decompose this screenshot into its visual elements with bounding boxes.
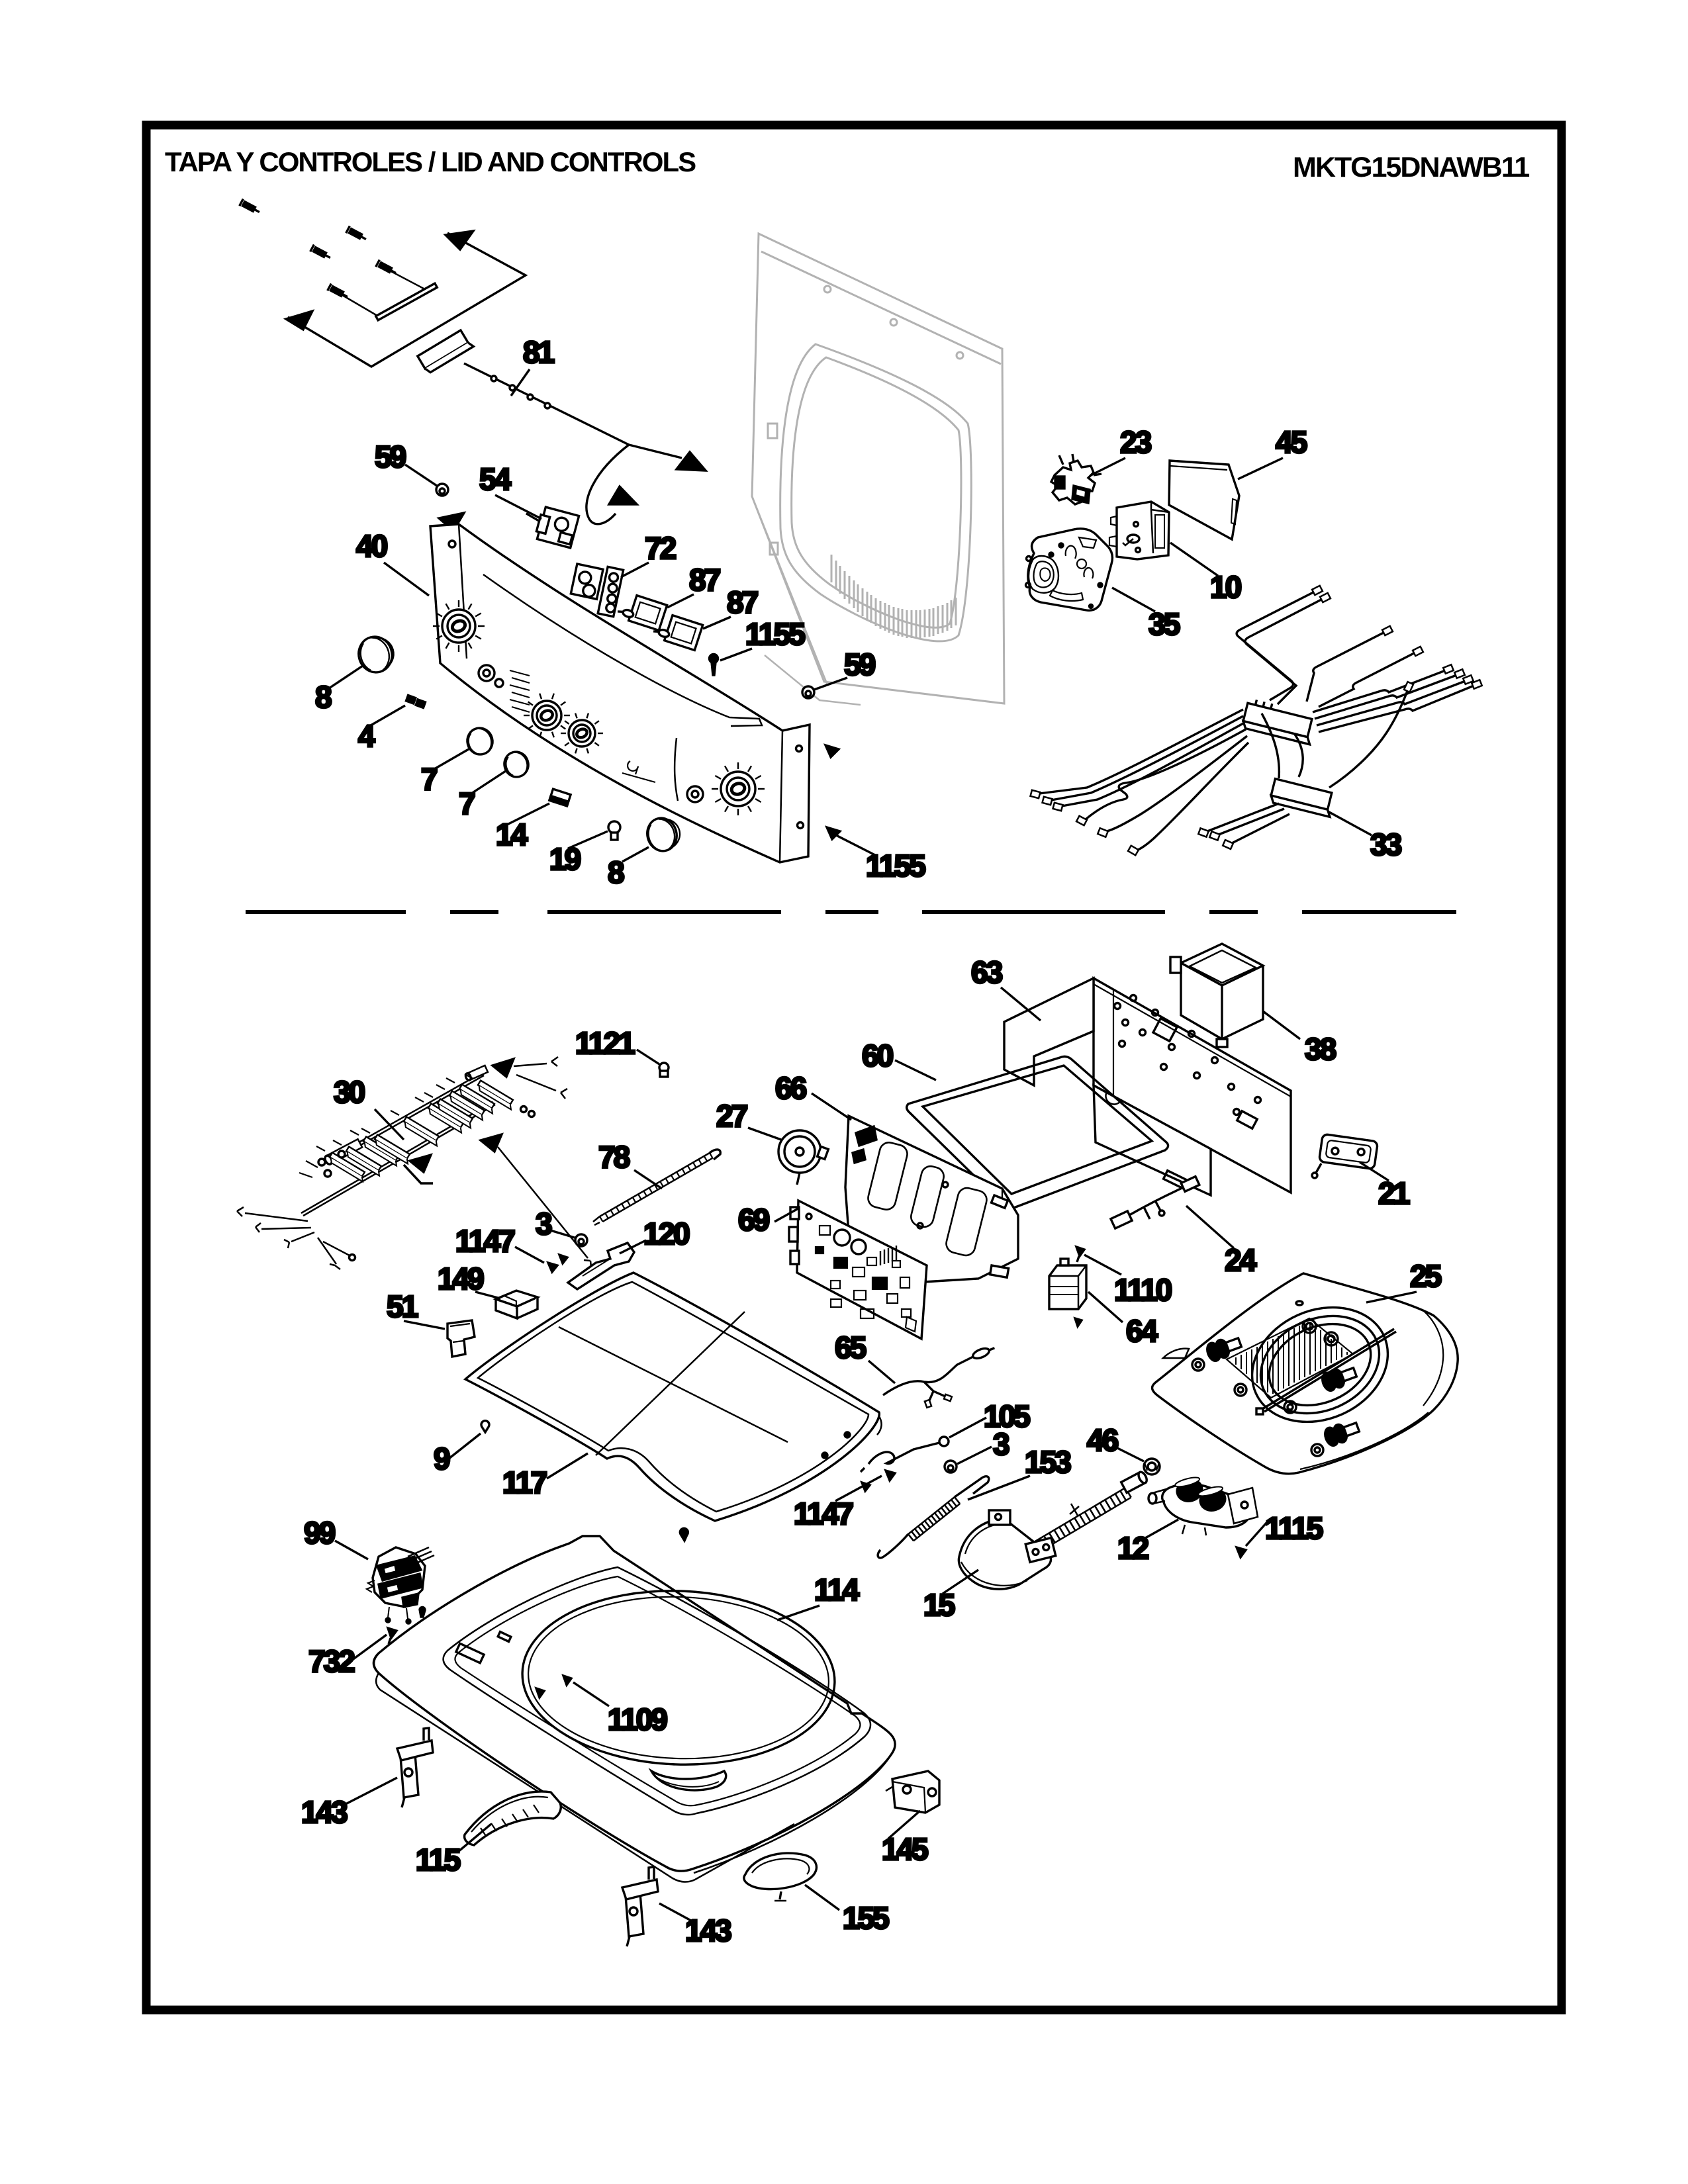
svg-text:1147: 1147 (794, 1496, 853, 1531)
svg-text:15: 15 (923, 1588, 955, 1622)
svg-text:12: 12 (1117, 1531, 1149, 1565)
svg-text:8: 8 (608, 855, 624, 889)
svg-text:33: 33 (1370, 827, 1401, 862)
svg-text:3: 3 (536, 1206, 551, 1241)
svg-text:78: 78 (598, 1140, 630, 1174)
svg-text:40: 40 (356, 529, 387, 563)
svg-text:114: 114 (814, 1572, 860, 1607)
svg-text:35: 35 (1149, 607, 1180, 641)
svg-text:10: 10 (1210, 570, 1241, 604)
svg-text:19: 19 (549, 842, 581, 876)
svg-text:732: 732 (308, 1644, 354, 1678)
svg-text:45: 45 (1276, 425, 1307, 459)
svg-text:155: 155 (843, 1901, 889, 1935)
svg-text:66: 66 (775, 1071, 806, 1105)
svg-text:TAPA Y CONTROLES / LID AND CO: TAPA Y CONTROLES / LID AND CONTROLS (165, 146, 696, 177)
svg-text:1155: 1155 (745, 617, 805, 651)
svg-text:143: 143 (685, 1913, 731, 1948)
svg-text:51: 51 (387, 1289, 418, 1324)
svg-text:1109: 1109 (608, 1702, 667, 1737)
svg-text:8: 8 (315, 680, 332, 714)
svg-text:1121: 1121 (575, 1026, 635, 1060)
svg-text:25: 25 (1410, 1259, 1442, 1293)
svg-text:120: 120 (643, 1216, 689, 1251)
svg-text:99: 99 (304, 1516, 335, 1550)
svg-text:64: 64 (1126, 1314, 1158, 1348)
svg-text:24: 24 (1225, 1243, 1257, 1277)
svg-text:153: 153 (1025, 1445, 1070, 1479)
svg-text:72: 72 (645, 531, 676, 565)
svg-text:59: 59 (375, 439, 406, 474)
svg-text:1147: 1147 (455, 1224, 514, 1258)
svg-text:65: 65 (835, 1330, 867, 1365)
svg-text:143: 143 (301, 1795, 347, 1829)
svg-text:1110: 1110 (1114, 1273, 1172, 1307)
svg-text:149: 149 (438, 1261, 483, 1296)
svg-text:69: 69 (738, 1203, 769, 1237)
svg-text:21: 21 (1378, 1176, 1410, 1210)
svg-text:23: 23 (1120, 425, 1151, 459)
svg-text:54: 54 (479, 462, 512, 496)
svg-text:115: 115 (416, 1843, 461, 1877)
svg-text:87: 87 (727, 585, 758, 619)
svg-text:60: 60 (862, 1038, 893, 1073)
svg-text:9: 9 (434, 1441, 449, 1476)
svg-text:63: 63 (971, 955, 1002, 989)
svg-text:87: 87 (689, 563, 720, 597)
svg-text:117: 117 (502, 1465, 547, 1500)
svg-text:MKTG15DNAWB11: MKTG15DNAWB11 (1293, 152, 1529, 183)
svg-text:3: 3 (993, 1427, 1009, 1461)
svg-text:59: 59 (844, 647, 875, 682)
svg-text:46: 46 (1087, 1423, 1118, 1457)
svg-text:38: 38 (1305, 1032, 1336, 1066)
svg-text:1155: 1155 (866, 848, 925, 883)
svg-text:1115: 1115 (1265, 1511, 1323, 1545)
svg-text:30: 30 (334, 1075, 365, 1109)
svg-text:7: 7 (459, 786, 475, 821)
svg-text:7: 7 (421, 762, 437, 796)
svg-text:27: 27 (716, 1099, 747, 1133)
svg-text:81: 81 (523, 335, 555, 369)
